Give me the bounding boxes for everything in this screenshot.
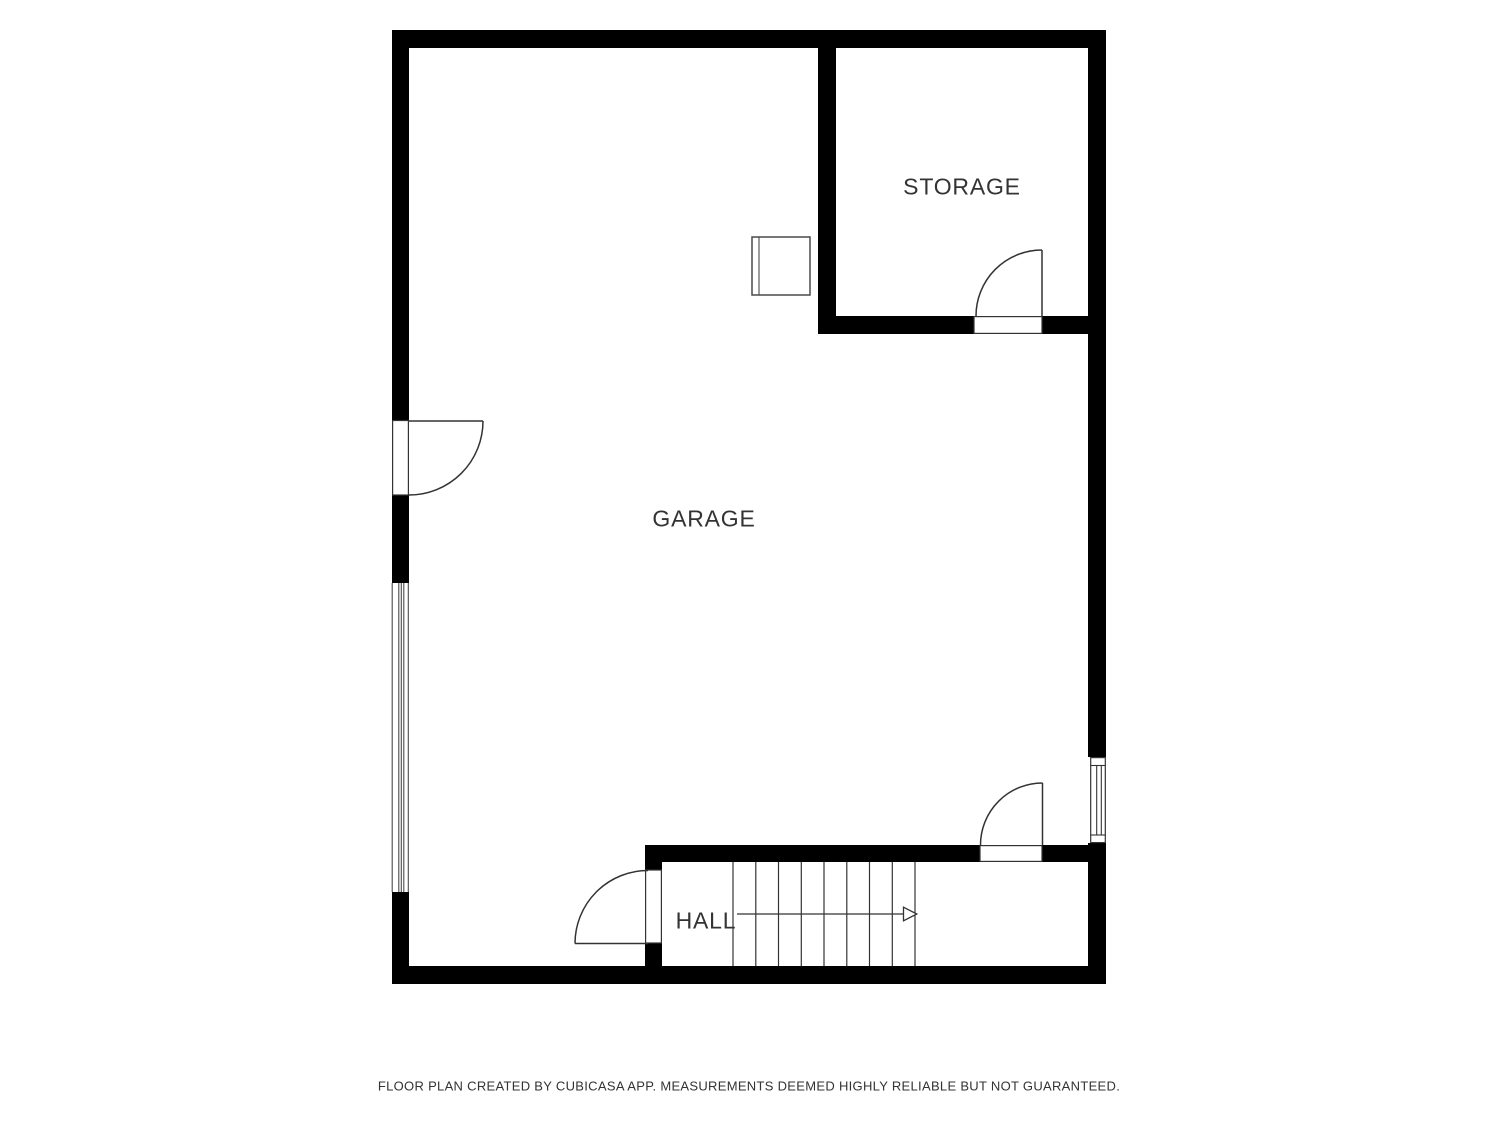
wall-storage-south-right xyxy=(1042,316,1088,334)
door-arc xyxy=(575,871,648,944)
floor-plan-drawing xyxy=(0,0,1500,1125)
window xyxy=(1089,757,1106,843)
storage-door xyxy=(976,250,1042,316)
room-label-storage: STORAGE xyxy=(903,174,1021,201)
wall-left-mid xyxy=(392,495,409,583)
wall-hall-north-right xyxy=(1042,845,1088,862)
fixture-outline xyxy=(752,237,810,295)
garage-entry-door xyxy=(409,421,483,495)
wall-hall-north-left xyxy=(645,845,980,862)
window-frame xyxy=(1091,758,1106,843)
hall-west-door xyxy=(575,871,648,944)
stairs-direction-arrow xyxy=(737,907,917,921)
door-swings xyxy=(409,250,1043,944)
hall-north-door xyxy=(981,783,1043,845)
wall-right-upper xyxy=(1088,30,1106,757)
door-arc xyxy=(981,783,1043,845)
wall-storage-south-left xyxy=(836,316,974,334)
wall-left-upper xyxy=(392,30,409,420)
door-arc xyxy=(976,250,1042,316)
hall-west-door-sill xyxy=(646,870,662,943)
wall-right-lower xyxy=(1088,843,1106,984)
hall-north-door-sill xyxy=(980,846,1042,862)
wall-top xyxy=(392,30,1106,48)
wall-hall-west-lower xyxy=(645,943,662,984)
garage-entry-door-sill xyxy=(393,421,409,496)
wall-storage-west xyxy=(818,30,836,334)
storage-door-sill xyxy=(974,317,1042,334)
room-label-garage: GARAGE xyxy=(652,506,755,533)
garage-door-opening xyxy=(392,583,409,892)
room-label-hall: HALL xyxy=(676,908,737,935)
storage-fixture xyxy=(752,237,810,295)
footer-disclaimer: FLOOR PLAN CREATED BY CUBICASA APP. MEAS… xyxy=(378,1079,1120,1094)
floor-plan-page: STORAGE GARAGE HALL FLOOR PLAN CREATED B… xyxy=(0,0,1500,1125)
wall-bottom xyxy=(392,966,1106,984)
door-arc xyxy=(409,421,483,495)
garage-door xyxy=(392,583,409,892)
wall-hall-west-upper xyxy=(645,845,662,870)
